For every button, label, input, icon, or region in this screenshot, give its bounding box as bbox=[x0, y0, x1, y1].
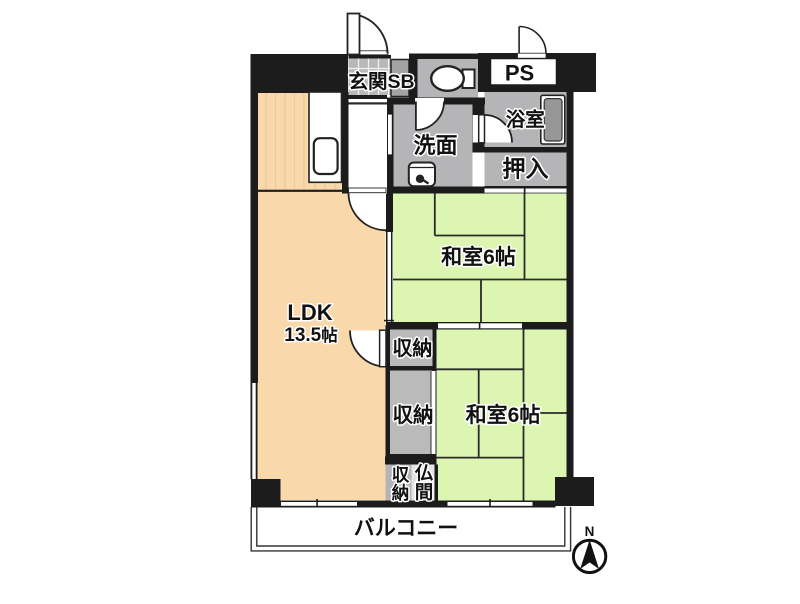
svg-text:浴室: 浴室 bbox=[506, 108, 545, 131]
svg-text:N: N bbox=[585, 524, 595, 539]
svg-text:押入: 押入 bbox=[503, 155, 549, 181]
svg-text:納: 納 bbox=[392, 483, 410, 503]
svg-text:収: 収 bbox=[392, 465, 410, 485]
svg-text:収納: 収納 bbox=[393, 403, 434, 427]
svg-text:玄関SB: 玄関SB bbox=[349, 70, 415, 93]
svg-text:13.5帖: 13.5帖 bbox=[284, 325, 338, 346]
svg-text:PS: PS bbox=[505, 61, 534, 86]
svg-text:仏: 仏 bbox=[415, 463, 434, 484]
svg-text:LDK: LDK bbox=[287, 300, 332, 325]
svg-text:洗面: 洗面 bbox=[413, 133, 457, 158]
svg-text:和室6帖: 和室6帖 bbox=[441, 245, 516, 269]
svg-text:バルコニー: バルコニー bbox=[354, 517, 459, 540]
svg-text:収納: 収納 bbox=[392, 336, 432, 360]
svg-text:和室6帖: 和室6帖 bbox=[466, 403, 541, 427]
svg-text:間: 間 bbox=[415, 482, 434, 503]
